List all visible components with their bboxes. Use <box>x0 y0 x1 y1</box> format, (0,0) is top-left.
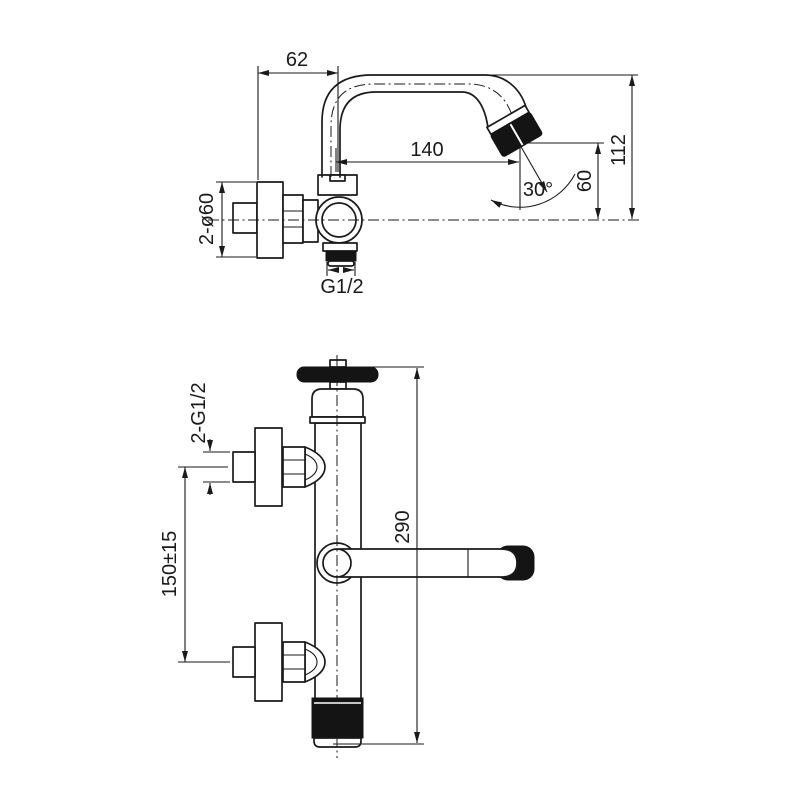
dim-outlet-thread: G1/2 <box>320 276 363 298</box>
handle-stem <box>330 360 346 367</box>
outlet-band <box>326 251 356 261</box>
dim-outlet-angle: 30° <box>523 179 553 201</box>
dim-inlet-spacing: 150±15 <box>159 531 181 598</box>
dim-flange-size: 2-ø60 <box>196 193 218 245</box>
dim-overall-height: 112 <box>608 134 630 166</box>
dim-wall-offset: 62 <box>286 49 308 71</box>
front-view <box>233 355 534 758</box>
dim-spout-reach: 140 <box>410 139 443 161</box>
hex-nut <box>283 195 303 243</box>
wall-nipple <box>233 203 257 233</box>
dim-inlet-thread: 2-G1/2 <box>188 382 210 443</box>
dim-overall-length: 290 <box>392 510 414 543</box>
bottom-cap <box>312 698 363 738</box>
spout-tube <box>340 549 517 577</box>
inlet-connection-top <box>233 428 325 506</box>
side-view-dimensions: 62 140 30° 112 60 2-ø60 G1/2 <box>196 49 638 298</box>
inlet-connection-bottom <box>233 623 325 701</box>
spout-inner-edge <box>340 92 488 177</box>
faucet-dimensional-drawing: 62 140 30° 112 60 2-ø60 G1/2 <box>0 0 800 800</box>
outlet-shoulder <box>323 243 357 251</box>
dim-outlet-height: 60 <box>574 170 596 192</box>
technical-drawing-page: 62 140 30° 112 60 2-ø60 G1/2 <box>0 0 800 800</box>
cross-handle <box>297 367 378 382</box>
aerator <box>486 105 543 157</box>
